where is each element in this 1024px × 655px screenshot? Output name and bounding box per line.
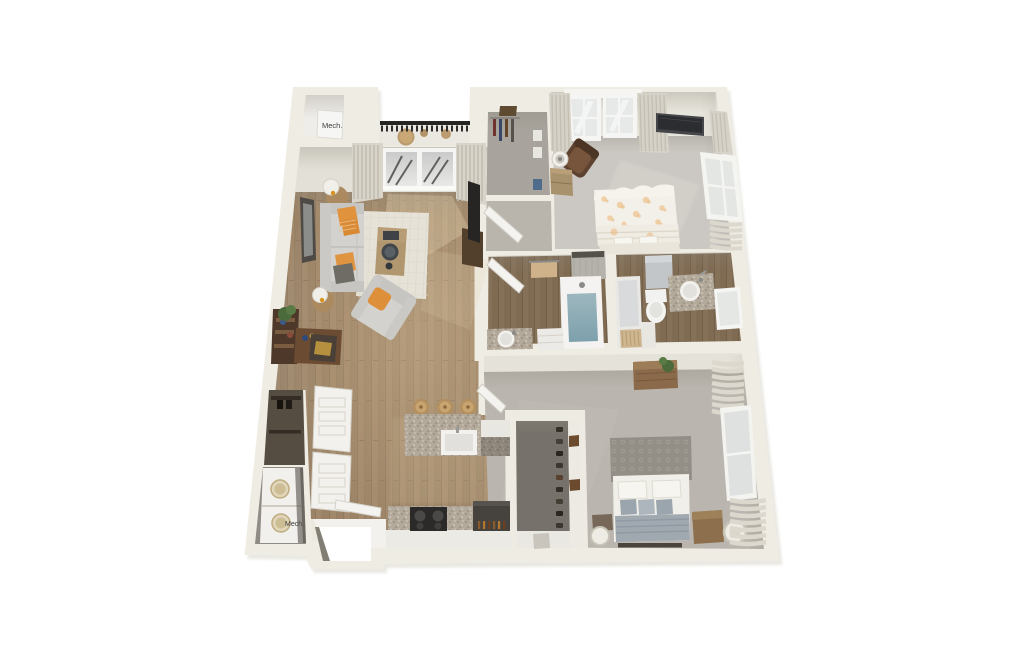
svg-text:Mech.: Mech. [322, 121, 342, 130]
